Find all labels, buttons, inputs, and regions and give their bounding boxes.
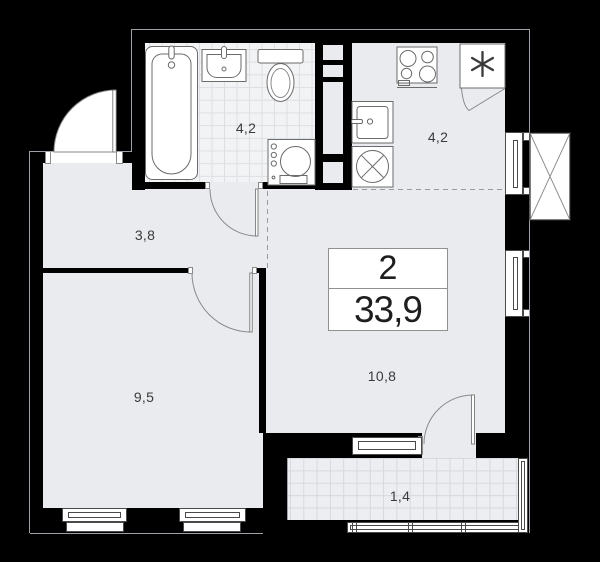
toilet [258, 50, 303, 102]
bathtub-faucet-icon [169, 46, 174, 59]
floor-plan: 4,2 4,2 3,8 9,5 10,8 1,4 2 33,9 [0, 0, 600, 562]
sink-faucet-icon [222, 47, 227, 59]
fridge [460, 44, 505, 111]
door-leaf [113, 90, 116, 152]
bathroom-area-label: 4,2 [236, 120, 256, 136]
fridge-door-swing [462, 89, 506, 111]
fixtures-layer [0, 0, 600, 562]
kitchen-washer [352, 147, 393, 188]
bathtub [146, 46, 198, 180]
door-leaf [472, 395, 475, 444]
vent-shaft [530, 133, 570, 220]
kitchen-sink [352, 102, 394, 144]
total-area: 33,9 [329, 289, 447, 331]
washing-machine [268, 140, 315, 186]
balcony-door [424, 395, 475, 444]
door-leaf [250, 273, 252, 332]
entry-door [54, 90, 116, 152]
hallway-area-label: 3,8 [135, 227, 155, 243]
door-leaf [256, 189, 258, 236]
kitchen-area-label: 4,2 [428, 129, 448, 145]
bedroom-door [192, 273, 252, 332]
bathroom-sink [202, 47, 246, 82]
sink-faucet-icon [352, 120, 363, 124]
bedroom-area-label: 9,5 [134, 389, 154, 405]
balcony-area-label: 1,4 [390, 488, 410, 504]
bathroom-door [210, 189, 258, 236]
stove [397, 47, 437, 88]
rooms-count: 2 [329, 249, 447, 289]
living-room-area-label: 10,8 [368, 368, 396, 384]
apartment-info-card: 2 33,9 [328, 248, 448, 331]
